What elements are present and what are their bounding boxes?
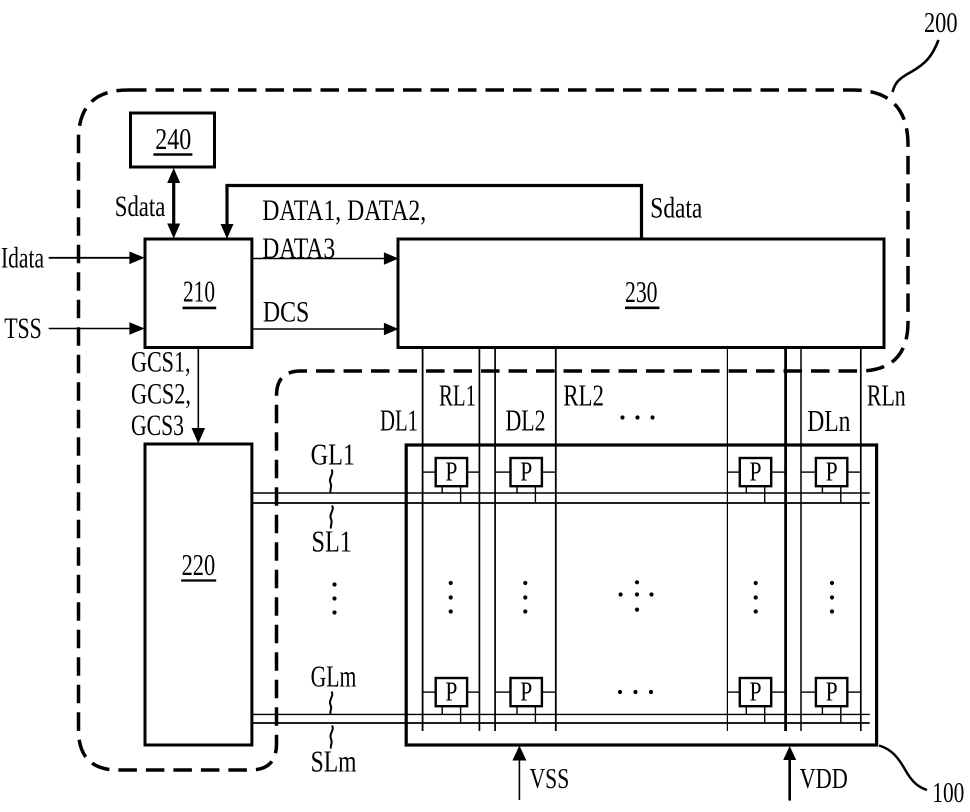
svg-text:230: 230	[625, 274, 658, 309]
svg-text:RLn: RLn	[867, 378, 906, 413]
svg-text:TSS: TSS	[4, 312, 42, 345]
svg-text:P: P	[826, 457, 838, 487]
svg-text:VSS: VSS	[530, 763, 570, 795]
svg-text:P: P	[520, 677, 532, 707]
svg-text:P: P	[750, 457, 762, 487]
svg-text:VDD: VDD	[800, 763, 848, 795]
svg-text:210: 210	[183, 274, 215, 309]
svg-text:DATA3: DATA3	[262, 232, 335, 265]
svg-text:240: 240	[155, 121, 191, 156]
svg-text:DATA1, DATA2,: DATA1, DATA2,	[262, 194, 426, 227]
svg-text:GCS1,: GCS1,	[131, 346, 191, 379]
svg-text:GL1: GL1	[311, 437, 355, 472]
svg-text:DLn: DLn	[807, 403, 851, 438]
svg-text:100: 100	[932, 777, 964, 809]
svg-text:Sdata: Sdata	[115, 190, 166, 223]
svg-text:GLm: GLm	[311, 659, 357, 694]
svg-text:P: P	[826, 677, 838, 707]
svg-text:DL2: DL2	[506, 403, 546, 438]
svg-text:P: P	[445, 677, 457, 707]
svg-text:P: P	[750, 677, 762, 707]
svg-text:DCS: DCS	[263, 296, 309, 329]
svg-text:DL1: DL1	[380, 403, 418, 438]
svg-text:200: 200	[924, 7, 958, 39]
svg-text:GCS3: GCS3	[131, 409, 184, 442]
svg-text:GCS2,: GCS2,	[131, 378, 191, 411]
svg-text:SL1: SL1	[312, 524, 352, 559]
svg-text:P: P	[445, 457, 457, 487]
svg-text:Idata: Idata	[1, 242, 44, 275]
svg-text:220: 220	[182, 547, 216, 582]
svg-text:P: P	[520, 457, 532, 487]
svg-text:Sdata: Sdata	[650, 192, 702, 225]
svg-text:RL1: RL1	[439, 378, 476, 413]
svg-text:SLm: SLm	[311, 744, 357, 779]
svg-text:RL2: RL2	[563, 378, 604, 413]
